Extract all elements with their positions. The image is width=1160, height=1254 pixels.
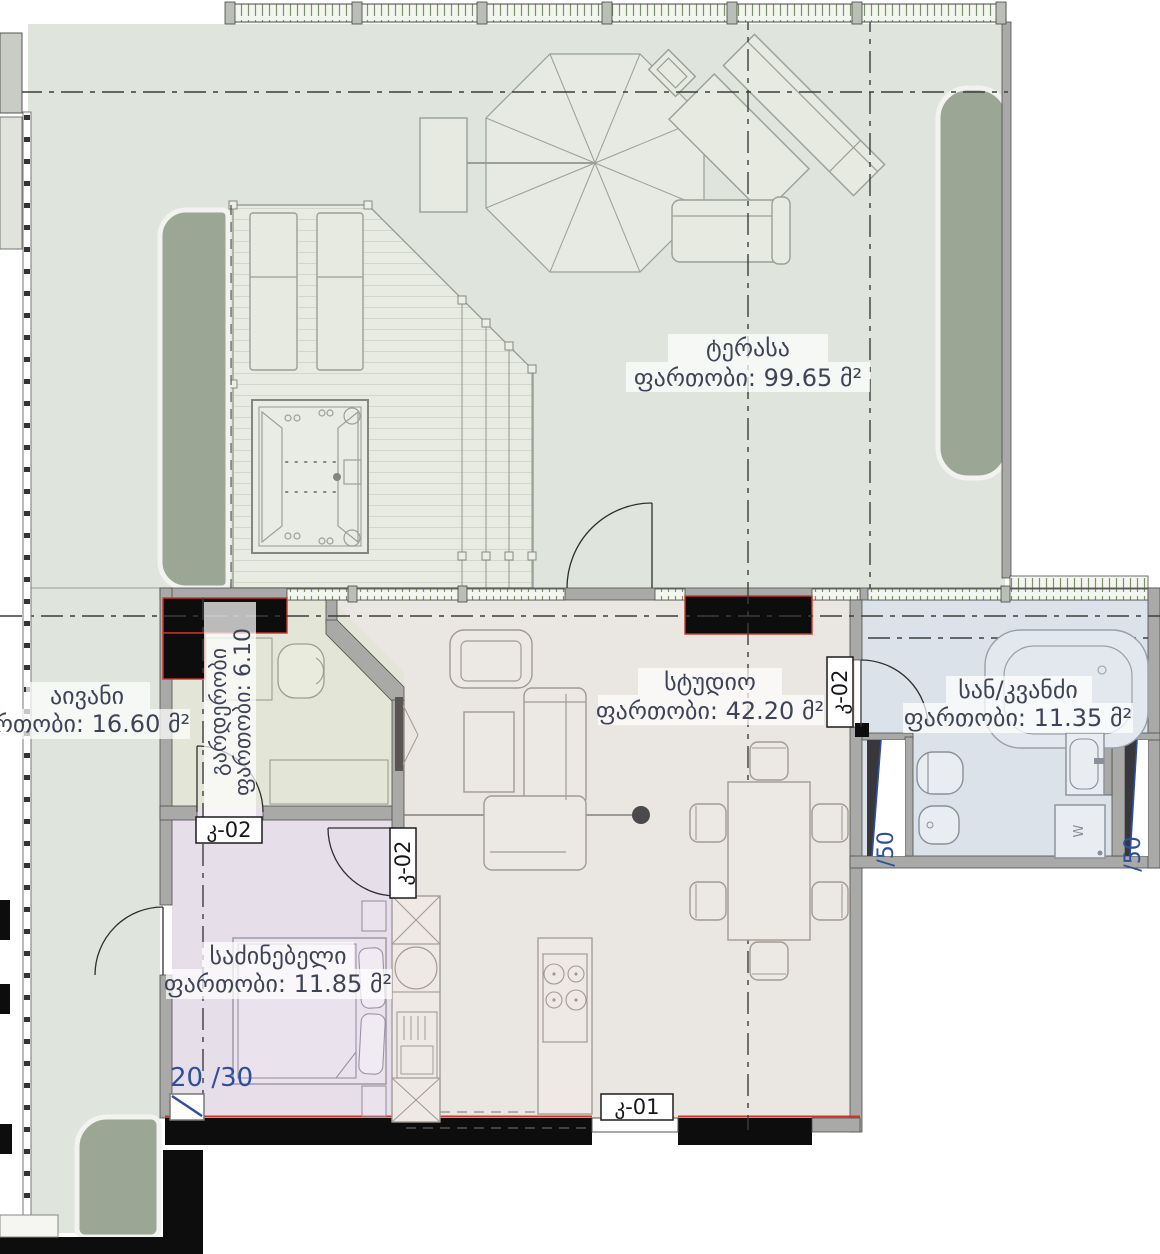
wall-bathroom-left-a bbox=[850, 600, 862, 660]
door-tag-entrance: კ-01 bbox=[601, 1094, 673, 1120]
edge-mark-1 bbox=[0, 900, 10, 940]
svg-text:კ-02: კ-02 bbox=[828, 669, 852, 714]
bidet bbox=[919, 806, 959, 844]
window-symbol bbox=[170, 1094, 204, 1120]
left-railing bbox=[23, 112, 31, 1215]
wardrobe-name: გარდერობი bbox=[207, 648, 232, 776]
bottom-left-corner bbox=[0, 1215, 58, 1237]
glazing-studio bbox=[287, 589, 565, 600]
shaft-corner-column bbox=[855, 723, 869, 737]
wardrobe-area: ფართობი: 6.10 bbox=[231, 628, 256, 796]
svg-text:კ-02: კ-02 bbox=[391, 840, 415, 885]
shaft-left-wall bbox=[905, 737, 913, 856]
kitchen-island bbox=[538, 938, 592, 1114]
floor-plan: W ტერასა ფართობი: 99.65 მ² სტუდიო ფართობ… bbox=[0, 0, 1160, 1254]
door-tag-bedroom: კ-02 bbox=[390, 828, 416, 898]
wardrobe-chair bbox=[278, 644, 324, 698]
column-wardrobe-2 bbox=[163, 633, 205, 679]
bathroom-name: სან/კვანძი bbox=[958, 676, 1078, 704]
glazing-studio-2 bbox=[655, 589, 685, 600]
planter-left bbox=[160, 210, 228, 588]
wall-bottom-band-1 bbox=[165, 1118, 592, 1145]
left-panel-1 bbox=[0, 33, 22, 113]
pillow-2 bbox=[358, 1013, 385, 1074]
wall-bathroom-left-b bbox=[850, 727, 862, 1132]
kitchen bbox=[392, 896, 440, 1122]
outdoor-sofa bbox=[672, 197, 790, 264]
studio-name: სტუდიო bbox=[664, 668, 756, 696]
wall-bottom-band-2 bbox=[678, 1118, 812, 1145]
balcony-name: აივანი bbox=[50, 682, 124, 710]
wall-wardrobe-bottom-r bbox=[263, 806, 402, 820]
window-band-right bbox=[1010, 576, 1148, 588]
column-bottom-strip bbox=[0, 1237, 203, 1254]
floor-plan-svg: W ტერასა ფართობი: 99.65 მ² სტუდიო ფართობ… bbox=[0, 0, 1160, 1254]
wall-bathroom-right bbox=[1148, 588, 1160, 868]
coffee-table bbox=[464, 712, 514, 792]
svg-text:კ-01: კ-01 bbox=[614, 1095, 659, 1119]
bedroom-name: საძინებელი bbox=[210, 942, 347, 970]
edge-mark-2 bbox=[0, 984, 10, 1014]
sink-faucet bbox=[1094, 758, 1104, 764]
wall-terrace-right bbox=[1002, 22, 1011, 578]
toilet bbox=[917, 752, 963, 794]
outdoor-table bbox=[420, 118, 467, 212]
dim-shaft-right: /50 bbox=[1121, 836, 1146, 871]
washer-label: W bbox=[1072, 824, 1087, 837]
wall-bottom-gray bbox=[812, 1118, 860, 1132]
studio-area: ფართობი: 42.20 მ² bbox=[596, 697, 824, 725]
planter-bottom-left bbox=[77, 1117, 159, 1237]
kitchen-counter bbox=[392, 896, 440, 1122]
dining-table bbox=[728, 782, 810, 940]
glazing-studio-3 bbox=[812, 589, 860, 600]
bathroom-area: ფართობი: 11.35 მ² bbox=[904, 704, 1132, 732]
bedroom-area: ფართობი: 11.85 მ² bbox=[164, 970, 392, 998]
svg-text:კ-02: კ-02 bbox=[206, 818, 251, 842]
door-tag-wardrobe: კ-02 bbox=[196, 817, 262, 843]
terrace-area: ფართობი: 99.65 მ² bbox=[634, 364, 862, 392]
hot-tub bbox=[252, 400, 368, 553]
washing-machine: W bbox=[1055, 805, 1105, 858]
left-panel-2 bbox=[0, 117, 22, 249]
top-railing bbox=[228, 4, 1006, 22]
nightstand-2 bbox=[362, 1086, 386, 1116]
dim-bedroom-window: 20 /30 bbox=[170, 1063, 253, 1093]
bathroom-sink bbox=[1066, 733, 1104, 795]
dim-shaft-left: /50 bbox=[874, 831, 899, 866]
room-label-wardrobe: გარდერობი ფართობი: 6.10 bbox=[204, 602, 256, 822]
edge-mark-3 bbox=[0, 1124, 12, 1154]
terrace-name: ტერასა bbox=[706, 334, 790, 362]
planter-right bbox=[938, 88, 1008, 478]
nightstand-1 bbox=[362, 901, 386, 931]
balcony-area: ფართობი: 16.60 მ² bbox=[0, 710, 190, 738]
door-tag-bathroom: კ-02 bbox=[827, 657, 853, 727]
center-point bbox=[632, 806, 650, 824]
wall-wardrobe-bottom-l bbox=[160, 806, 197, 820]
